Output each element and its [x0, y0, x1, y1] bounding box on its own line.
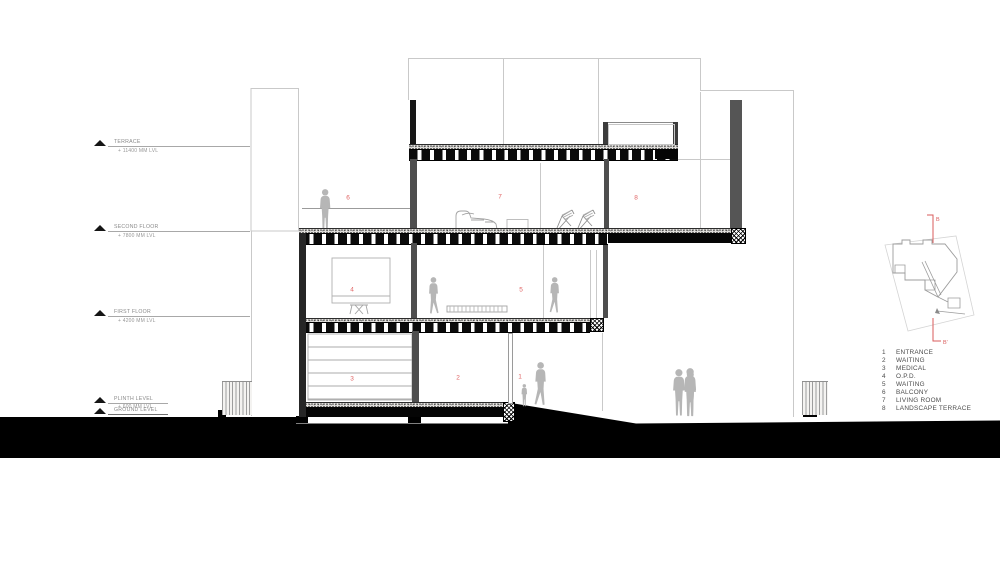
left-cut-wall	[299, 233, 306, 417]
legend-row: 3MEDICAL	[882, 365, 971, 373]
second-floor-slab-end	[731, 228, 746, 244]
level-value-terrace: + 11400 MM LVL	[118, 148, 158, 154]
walking-figure	[550, 277, 559, 313]
level-line	[108, 414, 168, 415]
column-footing	[503, 402, 515, 422]
entrance-column	[508, 333, 513, 404]
first-floor-core-wall	[411, 243, 417, 318]
room-marker-4: 4	[350, 287, 354, 294]
level-symbol-terrace	[94, 140, 106, 146]
deck-chair	[578, 210, 595, 228]
legend-label: MEDICAL	[891, 365, 926, 372]
legend-number: 5	[882, 381, 891, 388]
level-label-first: FIRST FLOOR	[114, 309, 151, 315]
first-floor-slab-joists	[301, 322, 590, 333]
stair-tower-wall	[410, 100, 416, 144]
bench-slats	[450, 306, 502, 312]
waiting-end-wall	[603, 245, 608, 318]
entrance-child-figure	[522, 384, 528, 406]
ground-floor-core-wall	[412, 331, 419, 402]
legend-number: 3	[882, 365, 891, 372]
legend-label: LIVING ROOM	[891, 397, 941, 404]
legend-number: 7	[882, 397, 891, 404]
terrace-slab-beam	[655, 150, 678, 159]
building-section-drawing: 1 2 3 4 5 6 7 8 TERRACE + 11400 MM LVL S…	[0, 0, 1000, 566]
terrace-slab-joists	[409, 149, 678, 161]
room-legend: 1ENTRANCE 2WAITING 3MEDICAL 4O.P.D. 5WAI…	[882, 349, 971, 413]
walking-figure	[429, 277, 438, 314]
level-label-terrace: TERRACE	[114, 139, 141, 145]
room-marker-7: 7	[498, 194, 502, 201]
section-linework	[0, 0, 1000, 566]
room-marker-6: 6	[346, 195, 350, 202]
level-label-plinth: PLINTH LEVEL	[114, 396, 153, 402]
legend-row: 1ENTRANCE	[882, 349, 971, 357]
legend-label: O.P.D.	[891, 373, 916, 380]
entrance-adult-figure	[535, 362, 546, 405]
room-marker-1: 1	[518, 374, 522, 381]
level-label-second: SECOND FLOOR	[114, 224, 159, 230]
terrace-railing-rail	[603, 122, 678, 123]
balcony-figure	[320, 189, 330, 230]
level-symbol-plinth	[94, 397, 106, 403]
legend-number: 4	[882, 373, 891, 380]
level-symbol-ground	[94, 408, 106, 414]
room-marker-5: 5	[519, 287, 523, 294]
section-mark-b: B	[936, 217, 940, 223]
legend-row: 7LIVING ROOM	[882, 397, 971, 405]
second-floor-slab-joists	[301, 233, 608, 245]
level-symbol-second	[94, 225, 106, 231]
level-value-second: + 7800 MM LVL	[118, 233, 156, 239]
legend-label: ENTRANCE	[891, 349, 933, 356]
room-marker-2: 2	[456, 375, 460, 382]
legend-row: 8LANDSCAPE TERRACE	[882, 405, 971, 413]
level-label-ground: GROUND LEVEL	[114, 407, 158, 413]
legend-row: 6BALCONY	[882, 389, 971, 397]
sofa-cushions	[462, 213, 494, 222]
second-floor-slab-beam	[608, 233, 731, 243]
left-elevation-wall	[251, 89, 299, 232]
legend-row: 4O.P.D.	[882, 373, 971, 381]
level-value-first: + 4200 MM LVL	[118, 318, 156, 324]
medical-shelving	[308, 334, 412, 400]
footing	[408, 416, 421, 423]
living-room-left-wall	[410, 159, 417, 228]
key-plan	[880, 212, 980, 354]
right-boundary-fence	[802, 381, 828, 415]
legend-label: BALCONY	[891, 389, 928, 396]
shelf-lines	[308, 347, 412, 399]
terrace-railing-glass	[608, 124, 675, 145]
legend-row: 5WAITING	[882, 381, 971, 389]
legend-number: 8	[882, 405, 891, 412]
legend-label: WAITING	[891, 381, 925, 388]
group-figure	[673, 369, 685, 415]
legend-label: LANDSCAPE TERRACE	[891, 405, 971, 412]
legend-number: 2	[882, 357, 891, 364]
left-boundary-fence	[222, 381, 252, 415]
legend-label: WAITING	[891, 357, 925, 364]
top-floor-mullions	[504, 59, 599, 144]
legend-number: 6	[882, 389, 891, 396]
ground-slab	[299, 407, 510, 417]
level-symbol-first	[94, 310, 106, 316]
legend-row: 2WAITING	[882, 357, 971, 365]
terrace-partition-wall-upper	[604, 159, 609, 228]
room-marker-3: 3	[350, 376, 354, 383]
footing	[296, 416, 308, 423]
terrace-parapet-wall	[730, 100, 742, 228]
section-mark-b-prime: B'	[943, 340, 948, 346]
deck-chair	[557, 210, 574, 228]
legend-number: 1	[882, 349, 891, 356]
room-marker-8: 8	[634, 195, 638, 202]
first-floor-slab-end	[590, 318, 604, 332]
stool	[350, 305, 368, 314]
